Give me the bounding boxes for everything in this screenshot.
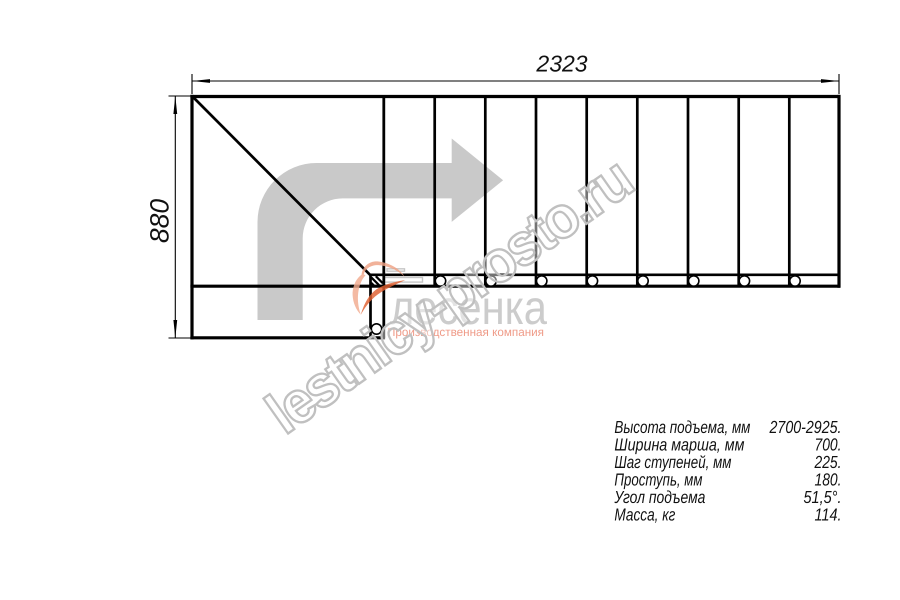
svg-text:880: 880 [145,199,175,243]
svg-text:Масса, кг: Масса, кг [614,505,675,525]
svg-text:2323: 2323 [535,51,587,77]
svg-text:114.: 114. [815,505,842,525]
